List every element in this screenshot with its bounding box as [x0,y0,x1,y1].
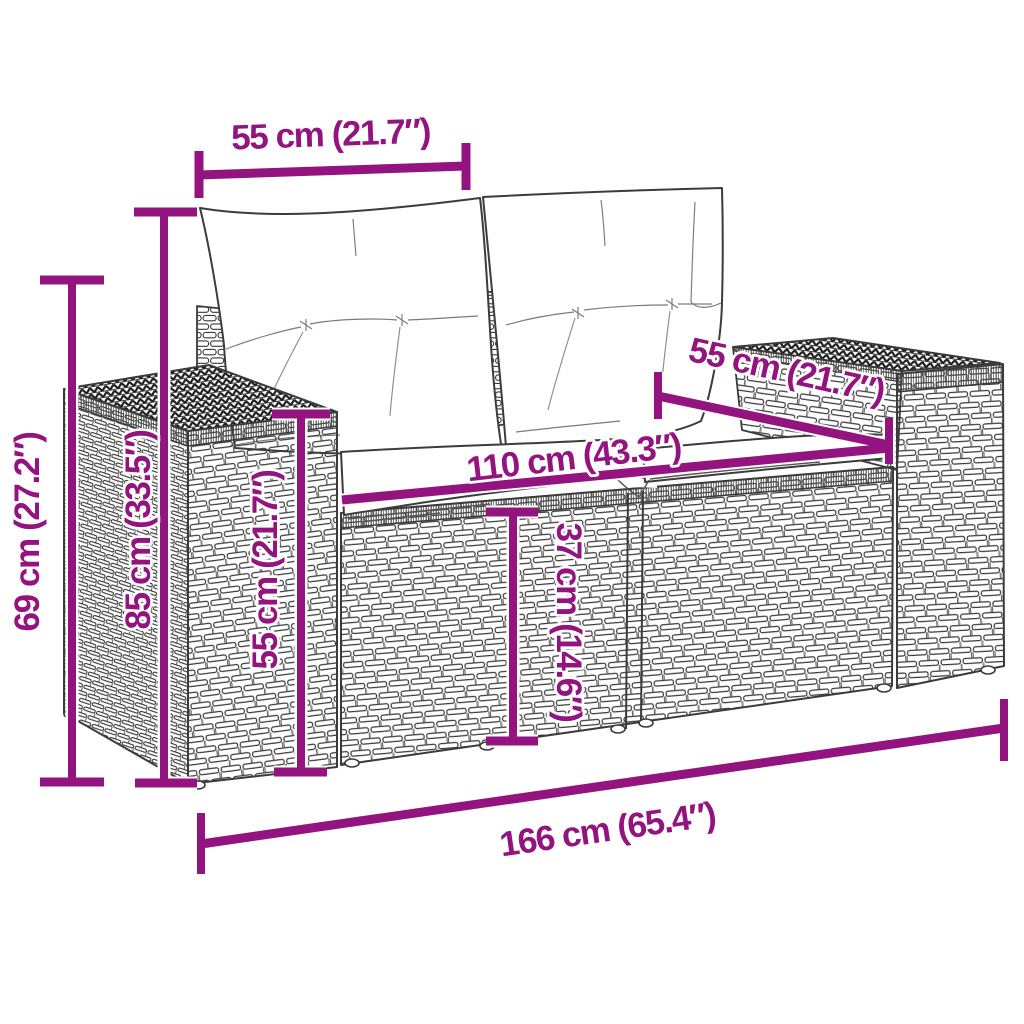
svg-text:37 cm (14.6″): 37 cm (14.6″) [549,523,588,722]
svg-text:69 cm (27.2″): 69 cm (27.2″) [8,433,47,632]
svg-text:55 cm (21.7″): 55 cm (21.7″) [230,112,430,158]
svg-text:85 cm (33.5″): 85 cm (33.5″) [119,431,158,630]
svg-text:55 cm (21.7″): 55 cm (21.7″) [246,471,285,670]
